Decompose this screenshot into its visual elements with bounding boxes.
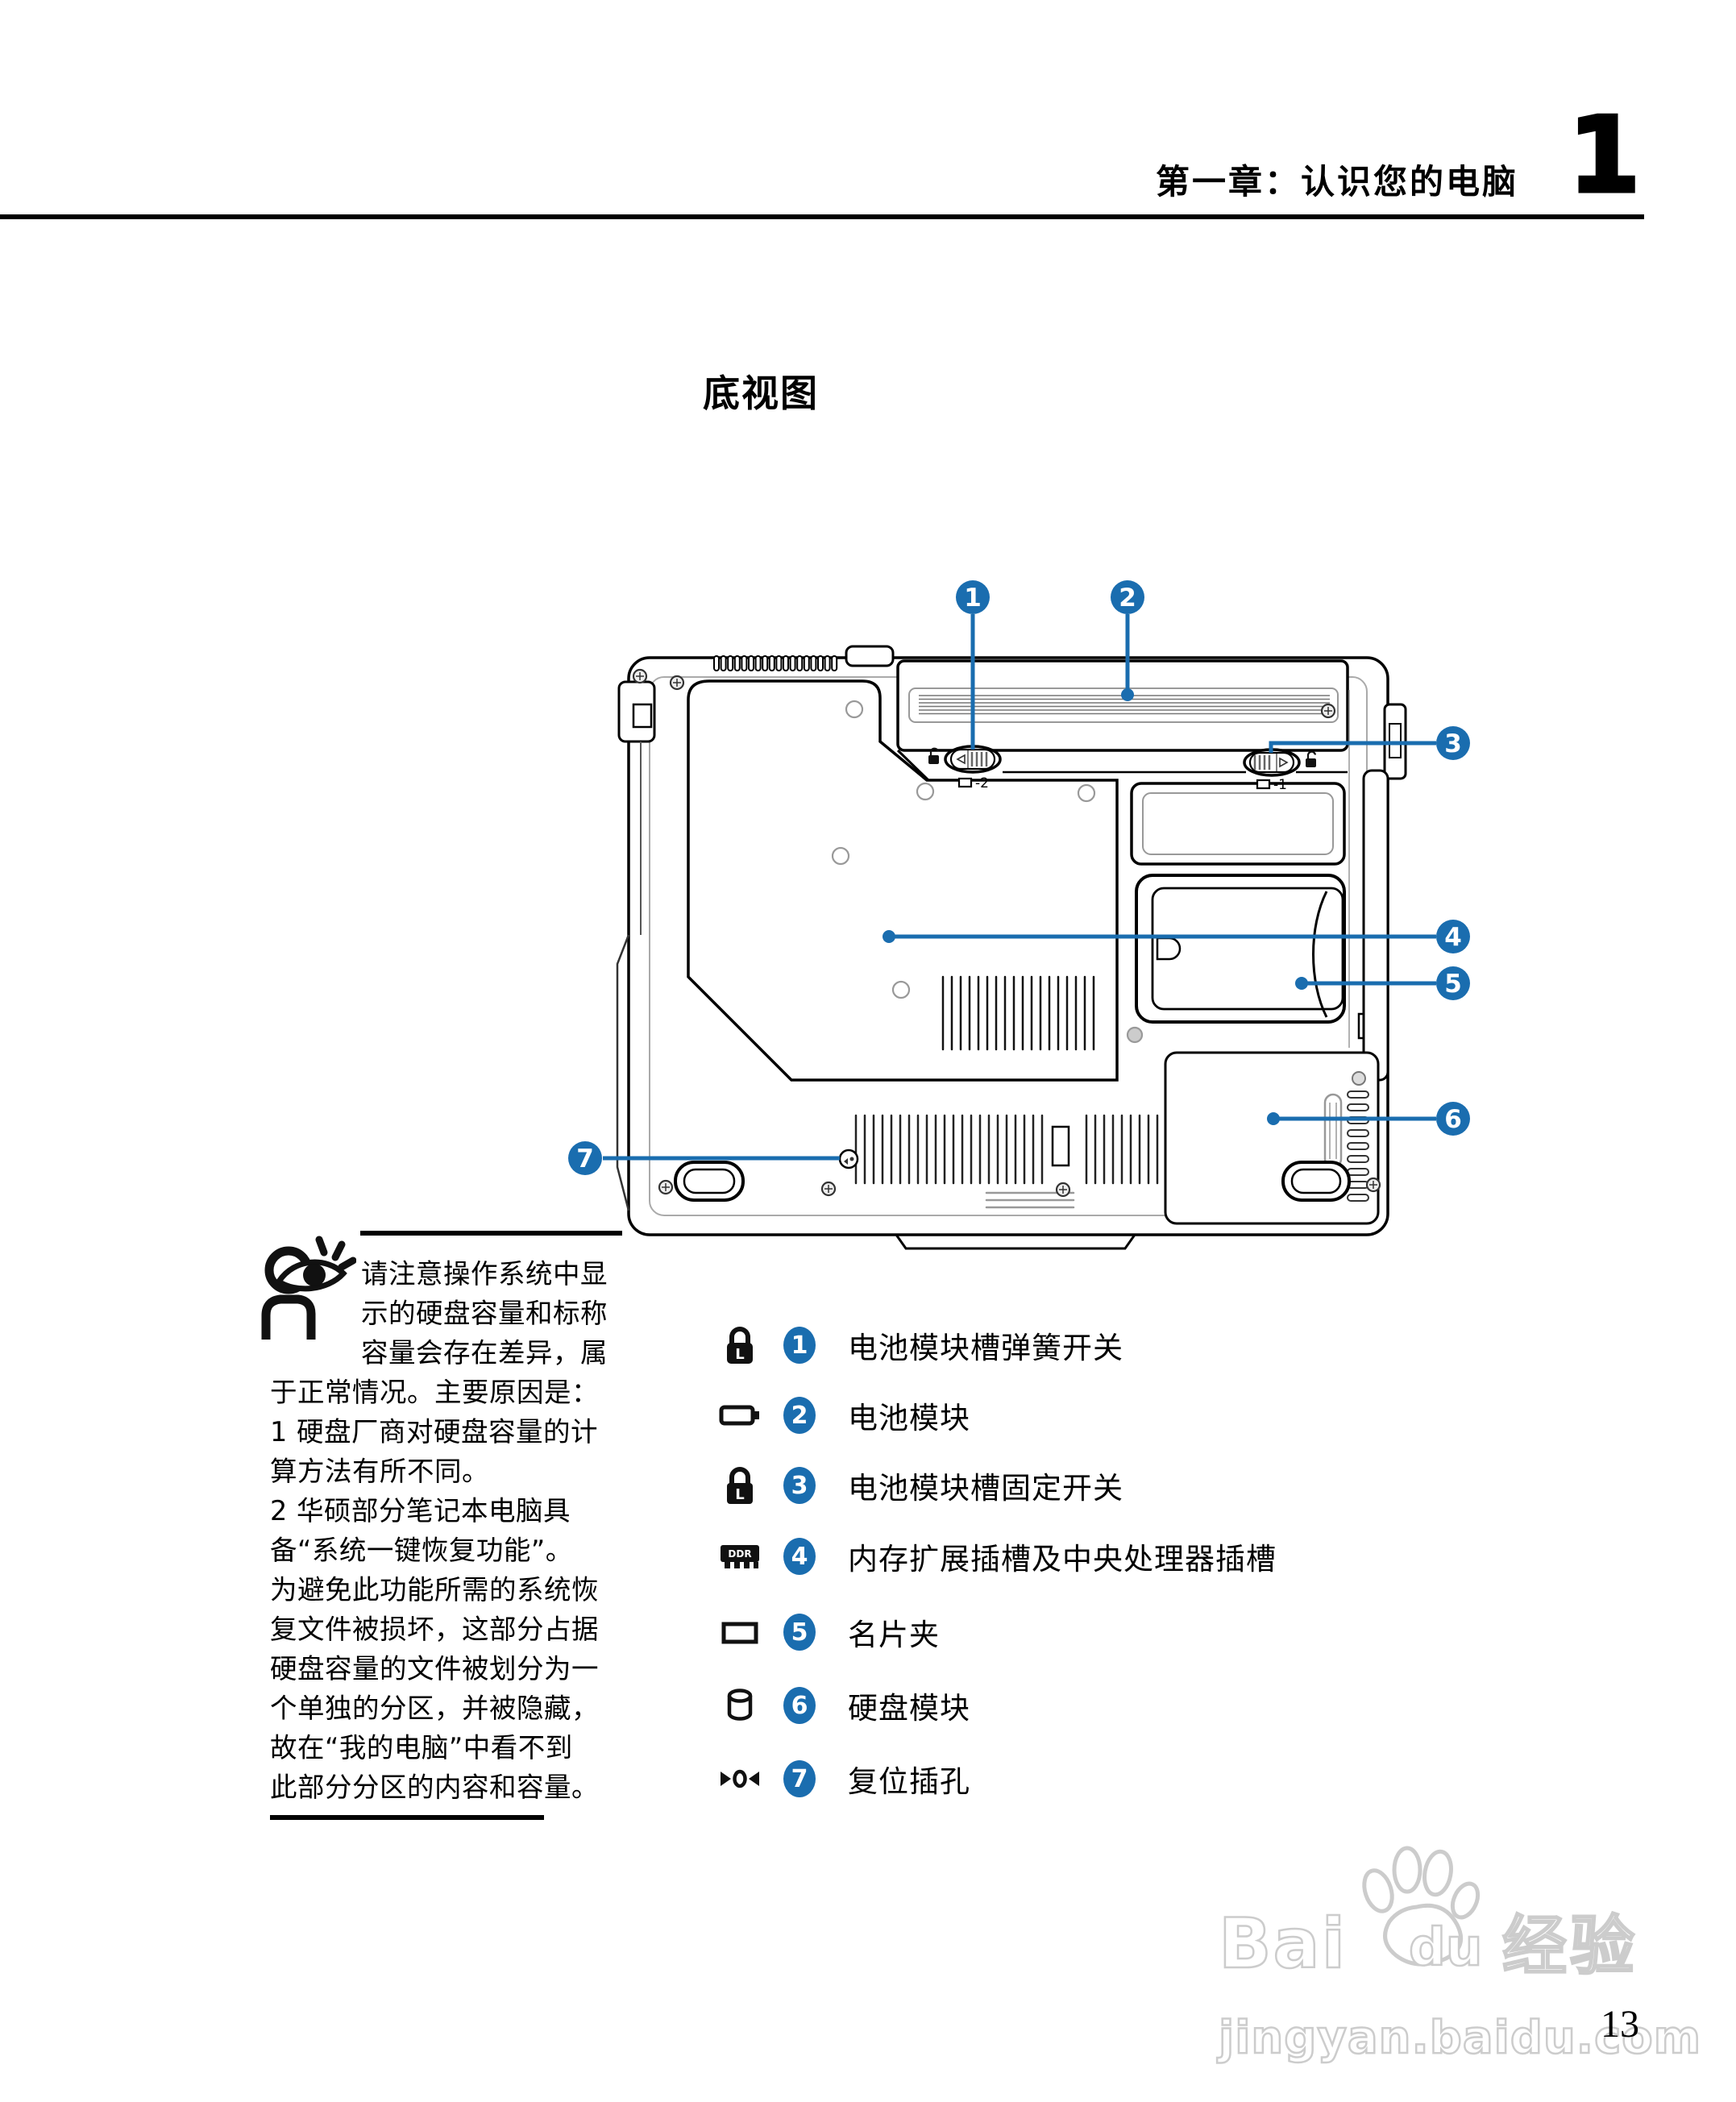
svg-text:1: 1 xyxy=(964,584,982,613)
note-paragraph: 请注意操作系统中显 示的硬盘容量和标称 容量会存在差异，属 于正常情况。主要原因… xyxy=(270,1254,629,1807)
svg-text:6: 6 xyxy=(1444,1105,1462,1134)
note-line: 容量会存在差异，属 xyxy=(270,1333,629,1373)
harddisk-icon xyxy=(708,1683,772,1728)
manual-page: { "header": { "chapter_title": "第一章：认识您的… xyxy=(0,0,1736,2102)
header-rule xyxy=(0,214,1644,219)
note-line: 故在“我的电脑”中看不到 xyxy=(270,1728,629,1768)
callout-2: 2 xyxy=(1111,580,1144,614)
watermark-brand-suffix: du xyxy=(1409,1918,1482,1978)
watermark-brand-prefix: Bai xyxy=(1219,1904,1347,1984)
note-rule-top xyxy=(360,1231,622,1236)
note-line: 硬盘容量的文件被划分为一 xyxy=(270,1649,629,1689)
laptop-bottom-diagram: -2 -1 1 2 3 4 5 6 xyxy=(556,556,1507,1265)
legend-number: 5 xyxy=(783,1614,816,1651)
note-line: 1 硬盘厂商对硬盘容量的计 xyxy=(270,1412,629,1452)
svg-text:L: L xyxy=(735,1486,744,1503)
legend-item-4: DDR 4 内存扩展插槽及中央处理器插槽 xyxy=(708,1527,1277,1585)
note-line: 示的硬盘容量和标称 xyxy=(270,1294,629,1333)
note-line: 为避免此功能所需的系统恢 xyxy=(270,1570,629,1610)
page-title: 底视图 xyxy=(703,364,819,417)
note-rule-bottom xyxy=(270,1815,544,1820)
baidu-jingyan-watermark: Bai du 经验 jingyan.baidu.com xyxy=(1219,1844,1654,2064)
page-number: 13 xyxy=(1601,2002,1639,2046)
callout-1: 1 xyxy=(956,580,990,614)
legend-item-7: 7 复位插孔 xyxy=(708,1750,970,1808)
note-line: 复文件被损坏，这部分占据 xyxy=(270,1610,629,1649)
lock-icon: L xyxy=(708,1323,772,1368)
legend-number: 4 xyxy=(783,1538,816,1575)
legend-number: 1 xyxy=(783,1327,816,1364)
battery-pack xyxy=(898,661,1348,750)
svg-text:L: L xyxy=(735,1346,744,1363)
legend-label: 复位插孔 xyxy=(848,1757,970,1801)
latch-right-label: -1 xyxy=(1273,777,1287,793)
legend-item-2: 2 电池模块 xyxy=(708,1386,970,1444)
reset-pinhole xyxy=(840,1150,858,1168)
note-line: 个单独的分区，并被隐藏， xyxy=(270,1689,629,1728)
chapter-title: 第一章：认识您的电脑 xyxy=(1156,155,1518,204)
battery-icon xyxy=(708,1393,772,1438)
note-line: 请注意操作系统中显 xyxy=(270,1254,629,1294)
legend-label: 电池模块 xyxy=(848,1394,970,1437)
ram-icon: DDR xyxy=(708,1534,772,1579)
legend-number: 3 xyxy=(783,1467,816,1504)
reset-icon xyxy=(708,1756,772,1801)
lock-icon: L xyxy=(708,1463,772,1508)
callout-7: 7 xyxy=(568,1141,602,1175)
svg-text:4: 4 xyxy=(1444,923,1462,952)
callout-6: 6 xyxy=(1436,1102,1470,1136)
svg-text:3: 3 xyxy=(1444,729,1462,758)
hdd-cover xyxy=(1165,1053,1378,1223)
note-line: 此部分分区的内容和容量。 xyxy=(270,1768,629,1807)
note-line: 备“系统一键恢复功能”。 xyxy=(270,1531,629,1570)
svg-text:DDR: DDR xyxy=(728,1548,751,1560)
legend-number: 2 xyxy=(783,1397,816,1434)
svg-text:7: 7 xyxy=(576,1144,594,1174)
svg-text:2: 2 xyxy=(1119,584,1136,613)
watermark-brand-cn: 经验 xyxy=(1502,1894,1638,1988)
hinge-block xyxy=(846,646,893,666)
legend-label: 内存扩展插槽及中央处理器插槽 xyxy=(848,1535,1277,1578)
card-icon xyxy=(708,1610,772,1655)
legend-label: 电池模块槽弹簧开关 xyxy=(848,1323,1123,1367)
legend-item-3: L 3 电池模块槽固定开关 xyxy=(708,1456,1123,1514)
legend-number: 7 xyxy=(783,1760,816,1797)
note-line: 算方法有所不同。 xyxy=(270,1452,629,1491)
latch-left-label: -2 xyxy=(975,775,989,791)
left-side-profile xyxy=(617,935,629,1211)
legend-item-5: 5 名片夹 xyxy=(708,1603,940,1661)
side-slot-bar xyxy=(1364,771,1388,1080)
callout-5: 5 xyxy=(1436,966,1470,1000)
callout-3: 3 xyxy=(1436,726,1470,760)
legend-item-6: 6 硬盘模块 xyxy=(708,1676,970,1734)
legend-label: 电池模块槽固定开关 xyxy=(848,1464,1123,1507)
svg-text:5: 5 xyxy=(1444,970,1462,999)
note-line: 2 华硕部分笔记本电脑具 xyxy=(270,1491,629,1531)
callout-4: 4 xyxy=(1436,920,1470,953)
memory-compartment xyxy=(1132,783,1344,864)
name-card-holder xyxy=(1136,875,1344,1022)
bottom-vent-grille xyxy=(856,1115,1157,1183)
docking-notch xyxy=(896,1235,1135,1248)
legend-number: 6 xyxy=(783,1687,816,1724)
legend-label: 名片夹 xyxy=(848,1610,940,1654)
watermark-url: jingyan.baidu.com xyxy=(1219,2012,1654,2064)
chapter-number: 1 xyxy=(1568,105,1640,208)
legend-item-1: L 1 电池模块槽弹簧开关 xyxy=(708,1316,1123,1374)
note-line: 于正常情况。主要原因是： xyxy=(270,1373,629,1412)
legend-label: 硬盘模块 xyxy=(848,1684,970,1727)
